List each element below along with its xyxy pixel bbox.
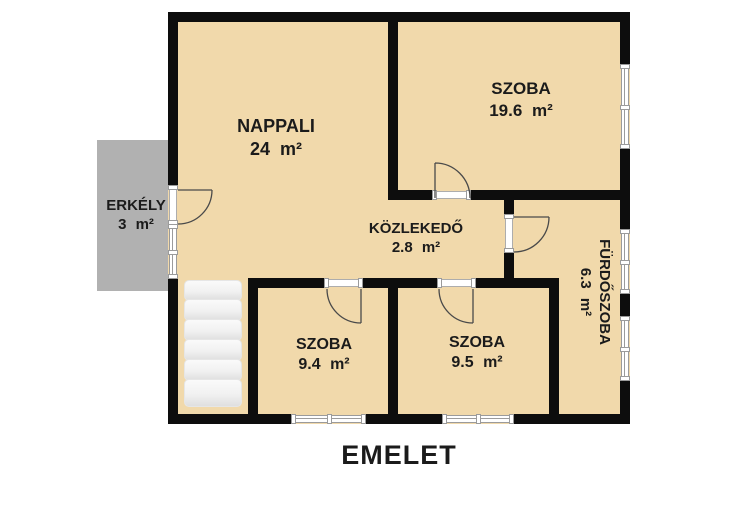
wall-right-1 bbox=[620, 12, 630, 65]
room-area: 2.8 m² bbox=[336, 238, 496, 257]
window-bottom-szoba95 bbox=[443, 415, 513, 423]
room-name: KÖZLEKEDŐ bbox=[336, 219, 496, 238]
wall-kozlekedo-furdo-a bbox=[504, 190, 514, 215]
stair-step bbox=[184, 299, 242, 321]
wall-szoba-felso-b bbox=[470, 190, 630, 200]
plan-title: EMELET bbox=[299, 440, 499, 471]
door-opening-szoba-felso bbox=[433, 191, 470, 199]
wall-left-lower bbox=[168, 277, 178, 424]
wall-right-2 bbox=[620, 148, 630, 230]
door-opening-szoba-bal bbox=[325, 279, 362, 287]
window-right-szoba bbox=[621, 65, 629, 148]
room-name: SZOBA bbox=[244, 335, 404, 355]
room-name: ERKÉLY bbox=[76, 196, 196, 215]
wall-nappali-szoba bbox=[388, 12, 398, 200]
room-area: 24 m² bbox=[196, 138, 356, 161]
room-area: 9.5 m² bbox=[397, 353, 557, 373]
room-name: NAPPALI bbox=[196, 115, 356, 138]
wall-left-upper bbox=[168, 12, 178, 185]
stair-step bbox=[184, 359, 242, 381]
wall-hall-a bbox=[248, 278, 325, 288]
stair-step bbox=[184, 339, 242, 361]
wall-top bbox=[168, 12, 630, 22]
wall-right-3 bbox=[620, 293, 630, 317]
room-area: 9.4 m² bbox=[244, 355, 404, 375]
wall-hall-c bbox=[475, 278, 559, 288]
room-area: 3 m² bbox=[76, 215, 196, 234]
floor-plan: NAPPALI 24 m² SZOBA 19.6 m² KÖZLEKEDŐ 2.… bbox=[0, 0, 730, 516]
stair-step bbox=[184, 280, 242, 301]
door-opening-szoba-jobb bbox=[438, 279, 475, 287]
room-area: 6.3 m² bbox=[576, 227, 595, 357]
room-label-szoba-felso: SZOBA 19.6 m² bbox=[441, 78, 601, 122]
wall-bottom-2 bbox=[365, 414, 443, 424]
wall-hall-b bbox=[362, 278, 438, 288]
wall-bottom-1 bbox=[168, 414, 292, 424]
room-label-furdoszoba: FÜRDŐSZOBA 6.3 m² bbox=[572, 227, 614, 357]
stair-step bbox=[184, 379, 242, 407]
room-name: FÜRDŐSZOBA bbox=[595, 227, 614, 357]
room-name: SZOBA bbox=[397, 333, 557, 353]
room-label-kozlekedo: KÖZLEKEDŐ 2.8 m² bbox=[336, 219, 496, 257]
stair-step bbox=[184, 319, 242, 341]
room-label-erkely: ERKÉLY 3 m² bbox=[76, 196, 196, 234]
room-area: 19.6 m² bbox=[441, 100, 601, 122]
room-label-szoba-jobb: SZOBA 9.5 m² bbox=[397, 333, 557, 374]
wall-bottom-3 bbox=[513, 414, 630, 424]
room-label-nappali: NAPPALI 24 m² bbox=[196, 115, 356, 161]
window-right-furdo-2 bbox=[621, 317, 629, 380]
stairs bbox=[184, 280, 242, 408]
wall-szoba-felso-a bbox=[388, 190, 433, 200]
window-right-furdo-1 bbox=[621, 230, 629, 293]
window-bottom-szoba94 bbox=[292, 415, 365, 423]
door-opening-furdoszoba bbox=[505, 215, 513, 252]
room-name: SZOBA bbox=[441, 78, 601, 100]
room-label-szoba-bal: SZOBA 9.4 m² bbox=[244, 335, 404, 376]
